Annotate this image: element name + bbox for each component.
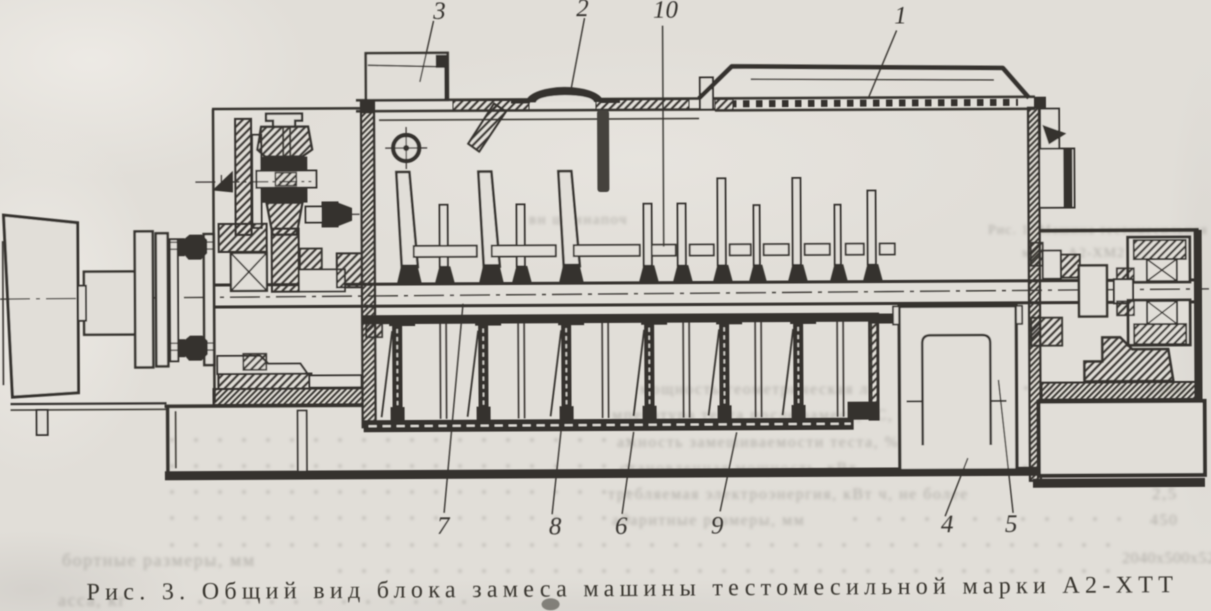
svg-text:бортные размеры, мм: бортные размеры, мм (62, 550, 256, 570)
svg-text:10: 10 (653, 0, 679, 24)
svg-text:1: 1 (894, 2, 907, 29)
svg-text:6: 6 (615, 513, 628, 540)
svg-text:8: 8 (549, 513, 562, 540)
svg-text:вн шяинапоч: вн шяинапоч (529, 212, 628, 228)
svg-text:9: 9 (711, 512, 724, 539)
svg-text:абаритные размеры, мм: абаритные размеры, мм (612, 512, 805, 529)
svg-text:2: 2 (576, 0, 589, 22)
svg-text:7: 7 (437, 513, 451, 540)
svg-text:3: 3 (432, 0, 446, 25)
svg-text:5: 5 (1005, 511, 1018, 538)
svg-text:ажность замешиваемости теста,: ажность замешиваемости теста, % (617, 434, 899, 451)
svg-text:450: 450 (1150, 512, 1179, 529)
svg-text:2040х500х520: 2040х500х520 (1122, 550, 1211, 567)
svg-text:требляемая электроэнергия, кВт: требляемая электроэнергия, кВт ч, не бол… (608, 486, 969, 503)
svg-text:4: 4 (941, 511, 954, 538)
svg-text:мощность геометрическая л: мощность геометрическая л (640, 381, 869, 398)
